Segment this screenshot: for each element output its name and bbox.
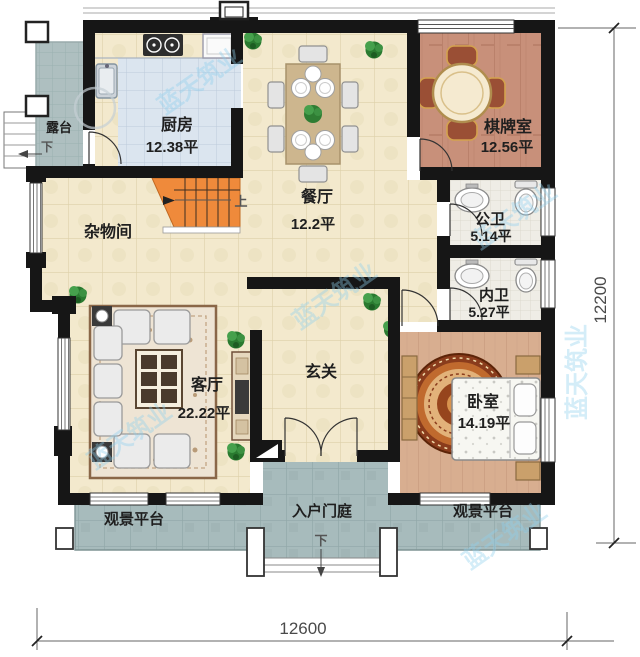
- label-public-bath: 公卫: [475, 211, 505, 228]
- label-platform-right: 观景平台: [453, 502, 513, 520]
- label-foyer: 玄关: [305, 362, 337, 381]
- label-entry-court: 入户门庭: [292, 502, 353, 520]
- platform-post-left: [56, 528, 73, 549]
- dining-table: [286, 64, 340, 164]
- label-public-bath-area: 5.14平: [470, 228, 511, 244]
- watermark-text: 蓝天筑业: [563, 324, 591, 420]
- label-platform-left: 观景平台: [104, 510, 164, 528]
- storage-left-window: [30, 183, 42, 253]
- floor-plan-svg: 12200 12600 蓝天筑业 蓝天筑业 蓝天筑业 蓝天筑业 蓝天筑业 蓝天筑…: [0, 0, 640, 657]
- label-private-bath-area: 5.27平: [468, 304, 509, 320]
- label-living-room: 客厅: [191, 375, 223, 394]
- dimension-bottom-label: 12600: [279, 619, 326, 638]
- chimney: [220, 2, 248, 19]
- label-storage: 杂物间: [84, 222, 132, 241]
- label-terrace-down: 下: [41, 140, 53, 154]
- entry-post-left: [247, 528, 264, 576]
- label-stairs-up: 上: [234, 194, 247, 209]
- chess-top-window: [418, 20, 514, 33]
- living-left-window: [58, 338, 70, 430]
- label-private-bath: 内卫: [479, 286, 509, 304]
- floor-plan: 12200 12600 蓝天筑业 蓝天筑业 蓝天筑业 蓝天筑业 蓝天筑业 蓝天筑…: [0, 0, 640, 657]
- entry-post-right: [380, 528, 397, 576]
- label-bedroom: 卧室: [467, 392, 499, 411]
- dresser: [402, 356, 417, 440]
- label-dining-area: 12.2平: [291, 216, 335, 233]
- label-chess-room-area: 12.56平: [481, 139, 534, 156]
- label-dining: 餐厅: [300, 187, 333, 206]
- dimension-right-label: 12200: [591, 276, 610, 323]
- stove: [143, 34, 183, 56]
- label-kitchen: 厨房: [161, 115, 193, 134]
- label-chess-room: 棋牌室: [484, 117, 532, 136]
- private-bath-toilet: [515, 259, 537, 292]
- label-bedroom-area: 14.19平: [458, 415, 511, 432]
- label-living-room-area: 22.22平: [178, 405, 231, 422]
- label-entry-down: 下: [314, 533, 327, 548]
- tv-cabinet: [232, 352, 252, 440]
- label-terrace: 露台: [46, 120, 72, 135]
- label-kitchen-area: 12.38平: [146, 139, 199, 156]
